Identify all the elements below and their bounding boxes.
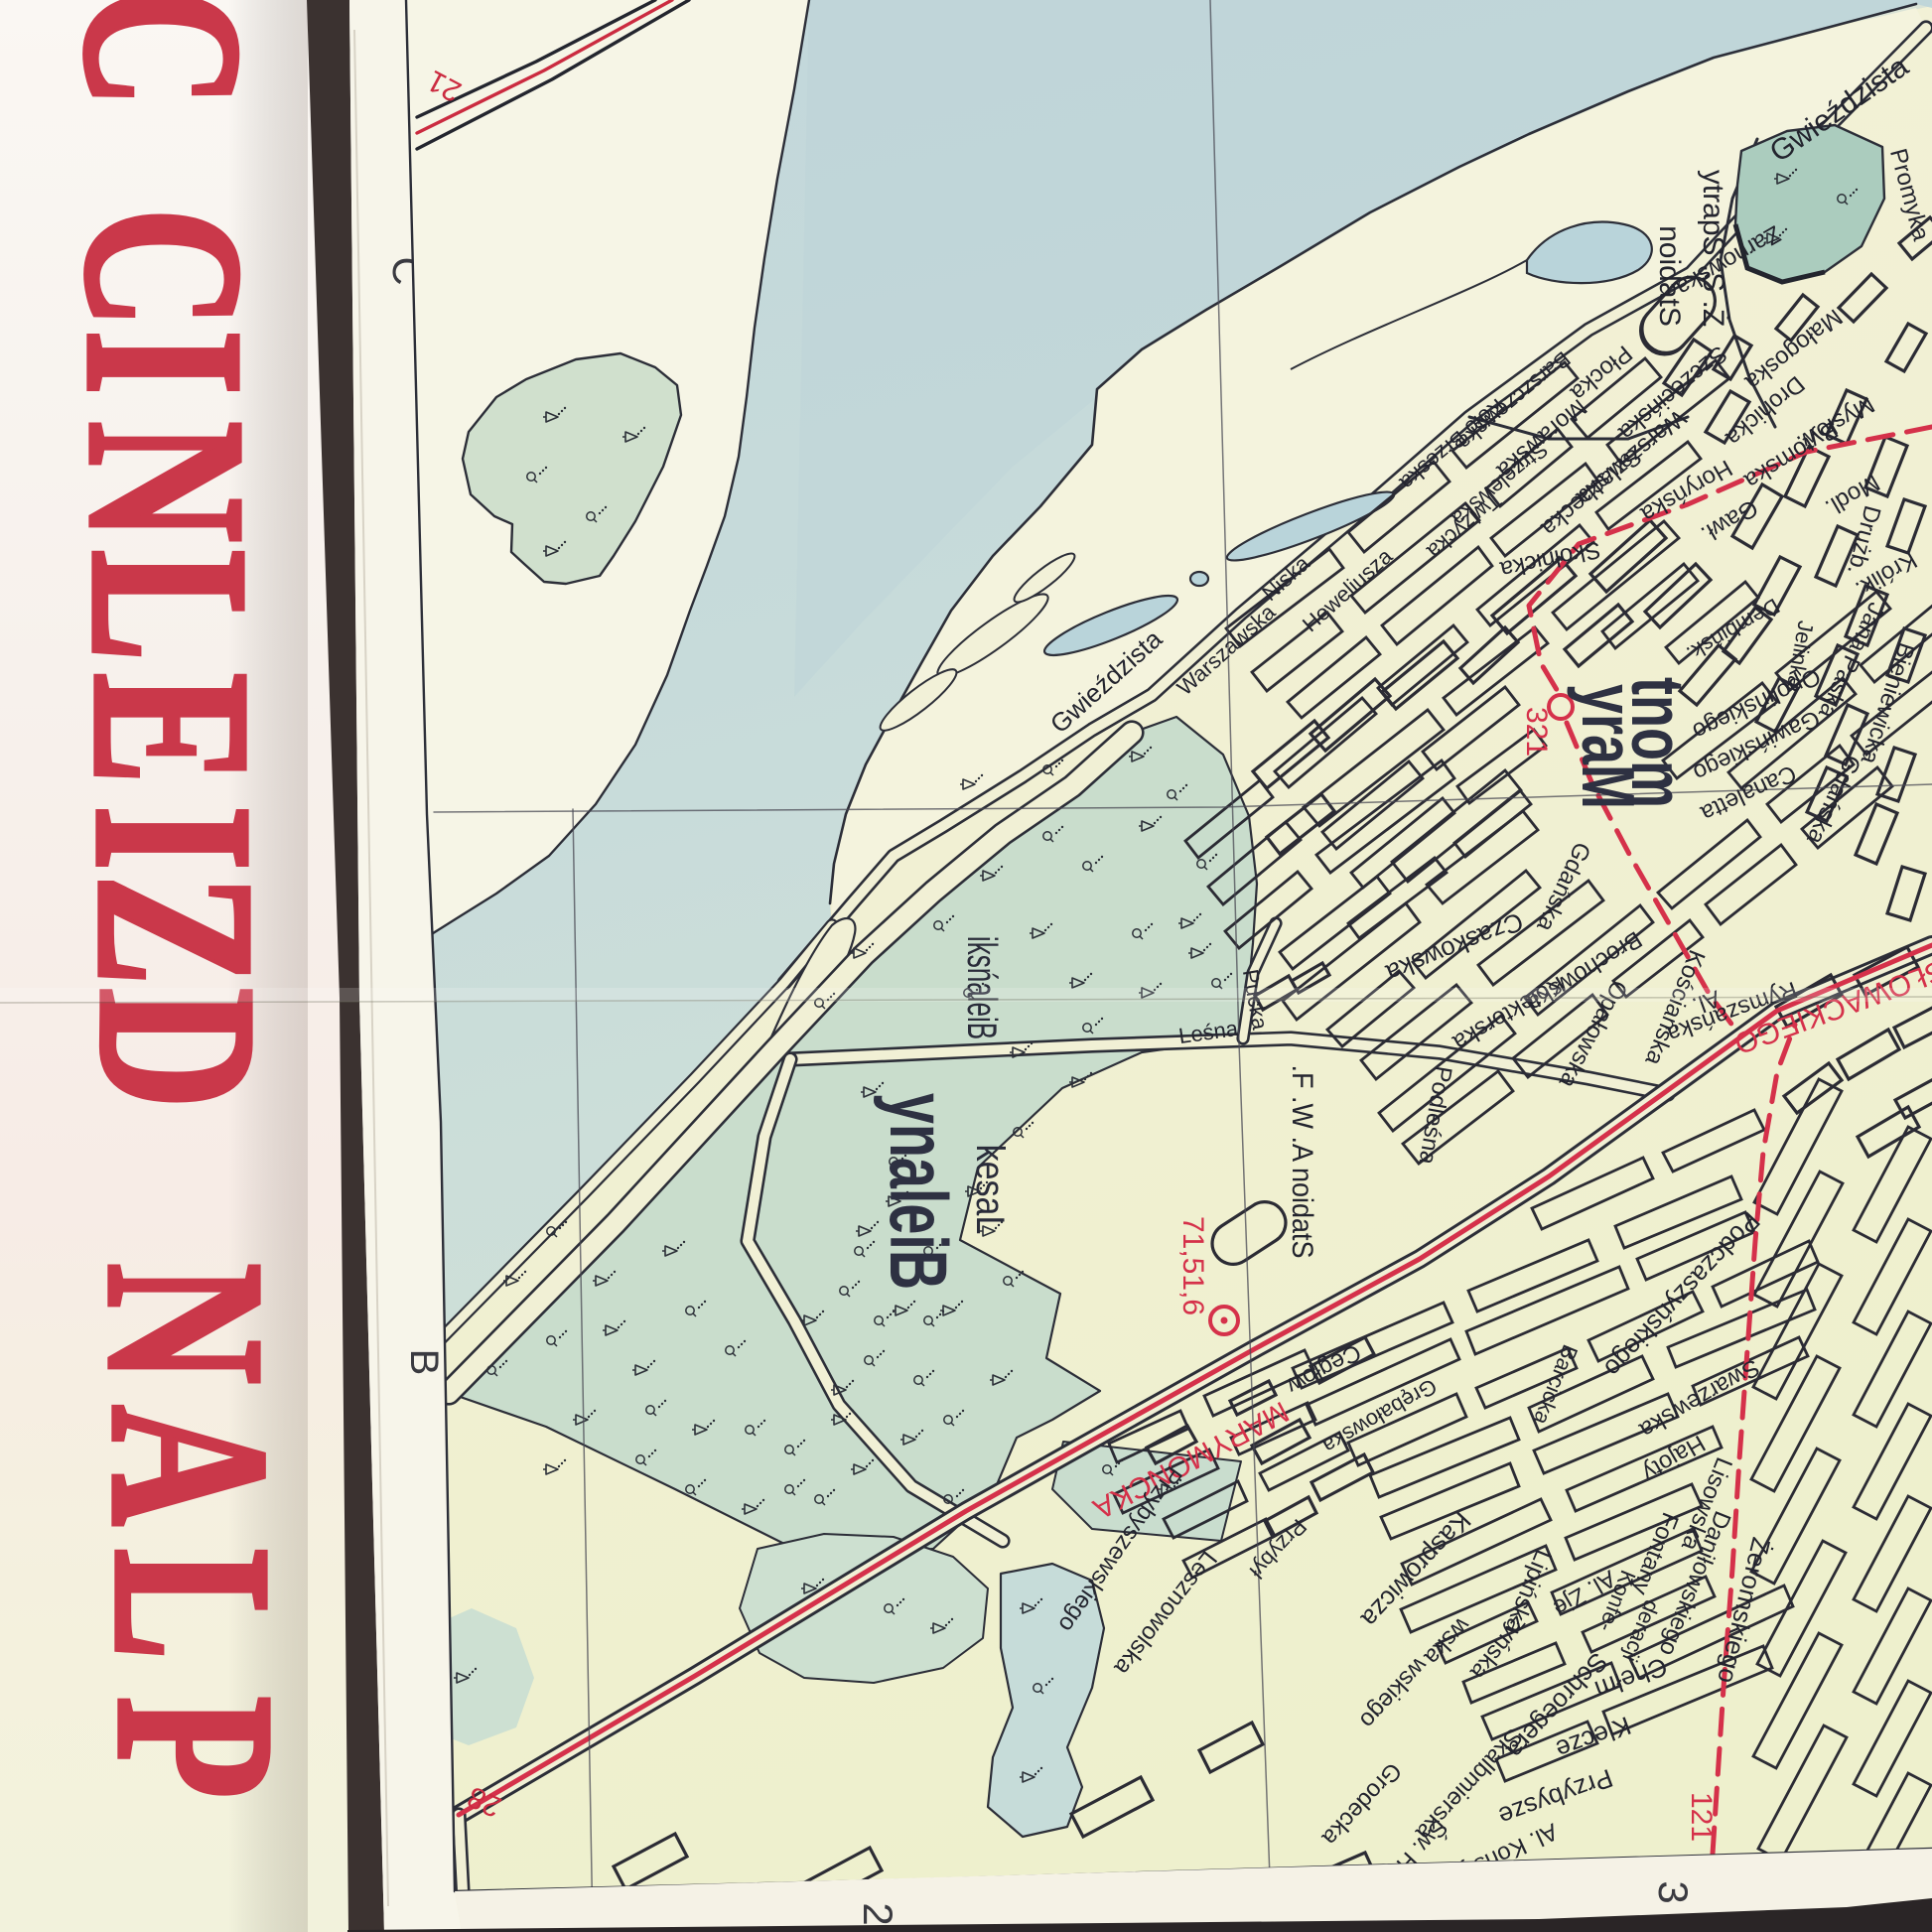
svg-text:2: 2 [855, 1902, 901, 1925]
svg-text:B: B [402, 1349, 446, 1376]
svg-text:121: 121 [1685, 1792, 1718, 1842]
svg-text:P: P [70, 1696, 321, 1798]
svg-text:I: I [40, 330, 290, 395]
svg-text:A: A [65, 1405, 315, 1526]
svg-text:C: C [39, 207, 289, 329]
svg-text:N: N [42, 421, 292, 542]
svg-text:3: 3 [1650, 1880, 1697, 1903]
svg-text:D: D [53, 988, 303, 1109]
svg-text:ynaleiB: ynaleiB [873, 1093, 963, 1290]
svg-text:E: E [47, 673, 297, 785]
svg-text:L: L [45, 550, 295, 662]
svg-text:N: N [61, 1263, 311, 1384]
svg-text:.F .W .A noidatS: .F .W .A noidatS [1286, 1065, 1319, 1259]
svg-text:Z: Z [51, 875, 301, 987]
svg-text:321: 321 [1520, 707, 1553, 757]
svg-text:I: I [49, 805, 299, 871]
svg-text:kesaL: kesaL [968, 1145, 1013, 1235]
svg-text:71,51,6: 71,51,6 [1176, 1216, 1209, 1315]
svg-text:C: C [38, 0, 288, 108]
svg-text:L: L [68, 1549, 318, 1661]
svg-text:tnom: tnom [1616, 677, 1700, 808]
